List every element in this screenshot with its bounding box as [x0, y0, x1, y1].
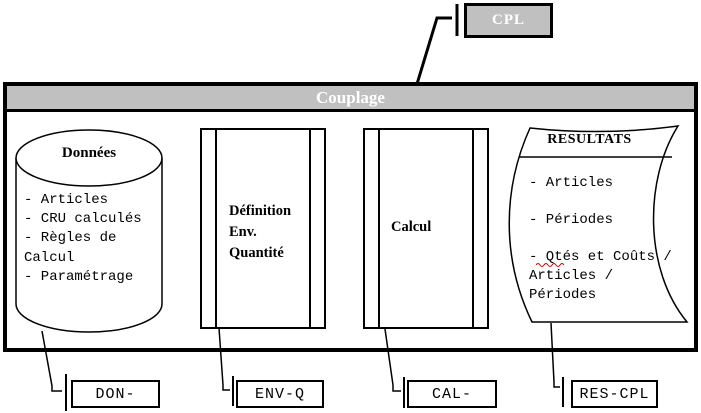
donnees-list-item: - Règles de: [24, 229, 142, 248]
cpl-node: CPL: [464, 3, 553, 38]
definition-label: Définition Env. Quantité: [229, 201, 291, 264]
cpl-node-label: CPL: [492, 12, 525, 29]
file-box-res-label: RES-CPL: [579, 386, 649, 403]
file-box-res: RES-CPL: [571, 380, 658, 408]
definition-label-line: Quantité: [229, 243, 291, 264]
file-box-env: ENV-Q: [236, 380, 324, 408]
process-inner-line: [472, 130, 474, 327]
file-box-don-label: DON-: [95, 386, 135, 403]
resultats-list-item: Articles /: [529, 267, 672, 286]
process-inner-line: [215, 130, 217, 327]
calcul-label: Calcul: [391, 219, 431, 236]
resultats-title: RESULTATS: [532, 132, 647, 148]
donnees-title: Données: [14, 145, 164, 162]
resultats-list-item: - Périodes: [529, 211, 672, 230]
resultats-list-item: [529, 193, 672, 212]
file-box-cal-label: CAL-: [432, 386, 472, 403]
spellcheck-squiggle: [536, 262, 564, 268]
donnees-list-item: Calcul: [24, 249, 142, 268]
process-inner-line: [309, 130, 311, 327]
diagram-canvas: CPL Couplage Données - Articles - CRU ca…: [0, 0, 701, 413]
resultats-list-item: [529, 230, 672, 249]
resultats-list: - Articles - Périodes - Qtés et Coûts / …: [529, 174, 672, 304]
resultats-list-item: - Articles: [529, 174, 672, 193]
file-box-cal: CAL-: [407, 380, 497, 408]
donnees-list-item: - CRU calculés: [24, 210, 142, 229]
process-inner-line: [378, 130, 380, 327]
donnees-list-item: - Paramétrage: [24, 268, 142, 287]
definition-label-line: Définition: [229, 201, 291, 222]
resultats-list-item: Périodes: [529, 286, 672, 305]
file-box-don: DON-: [71, 380, 160, 408]
file-box-env-label: ENV-Q: [255, 386, 305, 403]
cpl-connector-line: [417, 18, 452, 84]
definition-label-line: Env.: [229, 222, 291, 243]
couplage-header: Couplage: [7, 86, 694, 112]
donnees-list-item: - Articles: [24, 191, 142, 210]
donnees-list: - Articles - CRU calculés - Règles de Ca…: [24, 191, 142, 287]
couplage-title: Couplage: [316, 88, 385, 108]
